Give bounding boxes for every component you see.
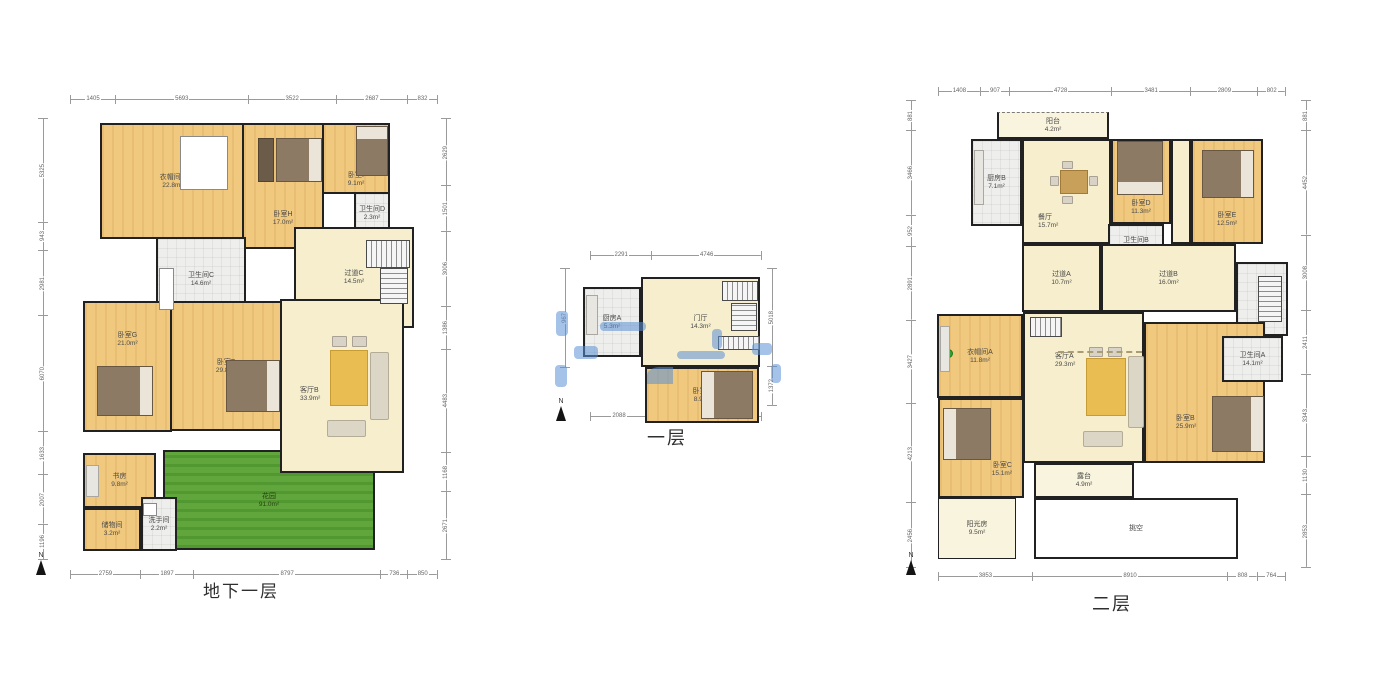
room-name: 阳台 (1046, 117, 1060, 126)
dimension-label: 832 (417, 96, 429, 103)
room-balcony: 阳台 4.2m² (997, 112, 1109, 139)
north-label: N (38, 552, 43, 559)
room-area: 14.6m² (191, 280, 211, 288)
blue-annotation-mark (771, 364, 781, 383)
wardrobe-icon (258, 138, 274, 182)
dimension-label: 1501 (443, 201, 450, 216)
room-name: 厨房B (987, 174, 1006, 183)
dimension-label: 4728 (1053, 88, 1068, 95)
room-name: 餐厅 (1038, 213, 1052, 222)
dashed-divider (1058, 351, 1142, 353)
dimension-segment: 2853 (1301, 494, 1311, 568)
dimension-label: 3006 (443, 261, 450, 276)
dimension-segment: 2687 (336, 95, 407, 104)
dimension-segment: 2411 (1301, 310, 1311, 373)
dimension-segment: 3006 (441, 231, 451, 306)
dimension-label: 4213 (908, 446, 915, 461)
room-name: 花园 (262, 492, 276, 501)
dimension-label: 1897 (159, 571, 174, 578)
room-area: 16.0m² (1158, 279, 1178, 287)
dimension-segment: 1633 (38, 431, 48, 474)
room-sunroom: 阳光房 9.5m² (938, 498, 1016, 559)
room-area: 29.3m² (1055, 361, 1075, 369)
stairs-icon (366, 240, 410, 268)
dimension-segment: 8910 (1032, 572, 1228, 581)
dimension-segment: 3522 (248, 95, 336, 104)
room-name: 卫生间D (359, 205, 385, 214)
chair-icon (1062, 161, 1073, 169)
dimension-label: 808 (1236, 573, 1248, 580)
dimension-col-right: 5018 1372 (767, 268, 777, 406)
dimension-label: 1168 (443, 465, 450, 480)
wardrobe-icon (180, 136, 228, 190)
room-name: 卫生间A (1240, 351, 1266, 360)
armchair-icon (332, 336, 347, 347)
shelf-icon (940, 326, 950, 372)
room-name: 门厅 (694, 314, 708, 323)
room-area: 2.2m² (151, 525, 168, 533)
dimension-segment: 952 (906, 215, 916, 247)
room-name: 卧室G (118, 331, 137, 340)
blue-annotation-mark (647, 367, 673, 384)
room-area: 3.2m² (104, 530, 121, 538)
plan-title-floor2: 二层 (1092, 590, 1132, 616)
dimension-segment: 1130 (1301, 456, 1311, 494)
dimension-label: 3853 (978, 573, 993, 580)
room-area: 33.9m² (300, 395, 320, 403)
stairs-icon (722, 281, 758, 301)
stairs-icon (1030, 317, 1062, 337)
dimension-segment: 943 (38, 222, 48, 250)
chair-icon (1062, 196, 1073, 204)
blue-annotation-mark (556, 311, 568, 336)
corridor-b-extension (1171, 139, 1191, 244)
dimension-label: 2291 (614, 252, 629, 259)
dimension-label: 952 (908, 225, 915, 237)
room-hallway-a: 过道A 10.7m² (1022, 244, 1101, 312)
stairs-icon (380, 268, 408, 304)
dimension-label: 3481 (1144, 88, 1159, 95)
dimension-segment: 2007 (38, 474, 48, 523)
dimension-label: 2456 (908, 528, 915, 543)
room-area: 9.5m² (969, 529, 986, 537)
dimension-segment: 3481 (1111, 87, 1190, 96)
dimension-label: 1633 (40, 446, 47, 461)
bed-icon (1117, 141, 1163, 195)
dimension-segment: 850 (407, 570, 438, 579)
dimension-label: 1405 (85, 96, 100, 103)
room-area: 12.5m² (1217, 220, 1237, 228)
dimension-segment: 6070 (38, 315, 48, 431)
dimension-label: 3427 (908, 354, 915, 369)
room-name: 卫生间C (188, 271, 214, 280)
dimension-label: 5693 (174, 96, 189, 103)
dimension-label: 1386 (443, 320, 450, 335)
dimension-row-bottom: 3853 8910 808 764 (938, 572, 1286, 581)
chair-icon (1050, 176, 1059, 186)
blue-annotation-mark (574, 346, 598, 359)
dimension-segment: 881 (1301, 100, 1311, 130)
room-name: 书房 (113, 472, 127, 481)
room-bathroom-a: 卫生间A 14.1m² (1222, 336, 1283, 382)
dimension-label: 881 (908, 110, 915, 122)
dimension-label: 2759 (98, 571, 113, 578)
room-name: 阳光房 (967, 520, 988, 529)
compass-icon: N (906, 552, 916, 575)
dimension-label: 2853 (1303, 524, 1310, 539)
dimension-segment: 2981 (38, 250, 48, 315)
bathtub-icon (159, 268, 174, 310)
dimension-label: 2629 (443, 145, 450, 160)
room-area: 15.7m² (1038, 222, 1058, 230)
room-name: 挑空 (1129, 524, 1143, 533)
room-storage: 储物间 3.2m² (83, 508, 141, 551)
room-area: 14.1m² (1242, 360, 1262, 368)
dimension-segment: 3427 (906, 320, 916, 404)
sofa-icon (370, 352, 389, 420)
room-name: 过道B (1159, 270, 1178, 279)
armchair-icon (352, 336, 367, 347)
bed-icon (226, 360, 280, 412)
dimension-label: 2671 (443, 518, 450, 533)
dimension-segment: 2629 (441, 118, 451, 185)
room-area: 11.3m² (1131, 208, 1151, 216)
dimension-label: 907 (989, 88, 1001, 95)
dimension-col-left: 881 3466 952 2891 3427 4213 2456 (906, 100, 916, 568)
dimension-segment: 2088 (590, 412, 647, 421)
dimension-row-top: 1405 5693 3522 2687 832 (70, 95, 438, 104)
dimension-label: 2007 (40, 492, 47, 507)
dimension-segment: 4452 (1301, 130, 1311, 234)
dimension-label: 1408 (952, 88, 967, 95)
room-name: 卧室H (273, 210, 292, 219)
dimension-segment: 802 (1257, 87, 1286, 96)
dimension-label: 736 (388, 571, 400, 578)
dimension-label: 4452 (1303, 175, 1310, 190)
room-area: 2.3m² (364, 214, 381, 222)
dimension-label: 3466 (908, 165, 915, 180)
dimension-label: 881 (1303, 110, 1310, 122)
room-name: 客厅A (1055, 352, 1074, 361)
bed-icon (1212, 396, 1264, 452)
dimension-segment: 1405 (70, 95, 115, 104)
compass-needle-icon (556, 406, 566, 421)
dimension-segment: 2809 (1190, 87, 1257, 96)
dimension-segment: 907 (980, 87, 1009, 96)
blue-annotation-mark (555, 365, 567, 387)
room-area: 9.8m² (111, 481, 128, 489)
compass-icon: N (36, 552, 46, 575)
dimension-segment: 881 (906, 100, 916, 130)
room-area: 7.1m² (988, 183, 1005, 191)
room-name: 卧室C (993, 461, 1012, 470)
dimension-label: 2809 (1217, 88, 1232, 95)
room-name: 衣帽间A (967, 348, 993, 357)
dimension-segment: 4213 (906, 403, 916, 502)
blue-annotation-mark (600, 322, 646, 331)
dimension-segment: 736 (380, 570, 407, 579)
dimension-segment: 3008 (1301, 235, 1311, 311)
room-area: 10.7m² (1051, 279, 1071, 287)
rug-icon (330, 350, 368, 406)
dimension-label: 3343 (1303, 408, 1310, 423)
dimension-row-top: 2291 4746 (590, 251, 762, 260)
dimension-label: 2891 (908, 276, 915, 291)
dimension-label: 943 (40, 230, 47, 242)
kitchen-counter-icon (586, 295, 598, 335)
dimension-label: 2411 (1303, 335, 1310, 350)
dimension-segment: 1501 (441, 185, 451, 231)
dimension-segment: 4728 (1009, 87, 1111, 96)
bed-icon (943, 408, 991, 460)
dimension-label: 5325 (40, 163, 47, 178)
blue-annotation-mark (712, 329, 722, 349)
dimension-segment: 2671 (441, 491, 451, 560)
dimension-segment: 5325 (38, 118, 48, 222)
dimension-label: 1196 (40, 534, 47, 549)
room-area: 4.2m² (1045, 126, 1062, 134)
room-area: 14.3m² (690, 323, 710, 331)
compass-needle-icon (36, 560, 46, 575)
north-label: N (558, 398, 563, 405)
floorplan-canvas: 花园 91.0m² 衣帽间B 22.8m² 卧室H 17.0m² 卧室I 9.1… (0, 0, 1389, 700)
dimension-segment: 3853 (938, 572, 1032, 581)
dimension-segment: 2291 (590, 251, 651, 260)
dimension-label: 8797 (279, 571, 294, 578)
dimension-col-right: 2629 1501 3006 1386 4483 1168 2671 (441, 118, 451, 560)
dimension-row-top: 1408 907 4728 3481 2809 802 (938, 87, 1286, 96)
dimension-label: 8910 (1122, 573, 1137, 580)
dimension-segment: 832 (407, 95, 438, 104)
desk-icon (86, 465, 99, 497)
dimension-label: 4483 (443, 393, 450, 408)
room-name: 过道C (344, 269, 363, 278)
room-area: 17.0m² (273, 219, 293, 227)
room-terrace: 露台 4.9m² (1034, 463, 1134, 498)
room-area: 9.1m² (348, 180, 365, 188)
blue-annotation-mark (752, 343, 772, 355)
dimension-label: 3522 (285, 96, 300, 103)
room-area: 25.9m² (1176, 423, 1196, 431)
room-name: 卧室D (1131, 199, 1150, 208)
compass-needle-icon (906, 560, 916, 575)
dimension-segment: 5693 (115, 95, 248, 104)
room-area: 11.8m² (970, 357, 990, 365)
dimension-segment: 1408 (938, 87, 980, 96)
dimension-label: 850 (417, 571, 429, 578)
room-name: 客厅B (300, 386, 319, 395)
dimension-segment: 1168 (441, 452, 451, 491)
room-name: 露台 (1077, 472, 1091, 481)
bed-icon (97, 366, 153, 416)
dimension-label: 5018 (769, 310, 776, 325)
plan-title-basement: 地下一层 (203, 577, 279, 602)
dimension-segment: 1386 (441, 306, 451, 349)
dimension-segment: 2891 (906, 246, 916, 319)
dimension-label: 802 (1266, 88, 1278, 95)
dimension-segment: 2759 (70, 570, 140, 579)
bed-icon (356, 126, 388, 176)
room-area: 15.1m² (992, 470, 1012, 478)
bed-icon (1202, 150, 1254, 198)
dimension-col-right: 881 4452 3008 2411 3343 1130 2853 (1301, 100, 1311, 568)
kitchen-counter-icon (974, 150, 984, 205)
dimension-segment: 3466 (906, 130, 916, 214)
dimension-segment: 764 (1257, 572, 1286, 581)
plan-title-floor1: 一层 (647, 424, 687, 450)
room-area: 14.5m² (344, 278, 364, 286)
room-name: 储物间 (102, 521, 123, 530)
chair-icon (1089, 176, 1098, 186)
dimension-label: 764 (1265, 573, 1277, 580)
bed-icon (276, 138, 322, 182)
room-hallway-b: 过道B 16.0m² (1101, 244, 1236, 312)
stairs-icon (731, 303, 757, 331)
room-void: 挑空 (1034, 498, 1238, 559)
dimension-label: 2981 (40, 276, 47, 291)
room-name: 卧室B (1176, 414, 1195, 423)
north-label: N (908, 552, 913, 559)
room-area: 91.0m² (259, 501, 279, 509)
sofa-icon (1083, 431, 1123, 447)
washer-icon (143, 503, 157, 516)
room-name: 过道A (1052, 270, 1071, 279)
room-name: 卧室E (1218, 211, 1237, 220)
sofa-icon (1128, 356, 1144, 428)
room-area: 21.0m² (117, 340, 137, 348)
stairs-icon (1258, 276, 1282, 322)
dining-table-icon (1060, 170, 1088, 194)
dimension-label: 4746 (699, 252, 714, 259)
blue-annotation-mark (677, 351, 725, 359)
dimension-label: 2687 (364, 96, 379, 103)
dimension-label: 3008 (1303, 265, 1310, 280)
dimension-segment: 1897 (140, 570, 193, 579)
room-area: 4.9m² (1076, 481, 1093, 489)
bed-icon (701, 371, 753, 419)
dimension-col-left: 5325 943 2981 6070 1633 2007 1196 (38, 118, 48, 560)
room-name: 洗手间 (149, 516, 170, 525)
rug-icon (1086, 358, 1126, 416)
dimension-label: 6070 (40, 366, 47, 381)
dimension-segment: 808 (1227, 572, 1256, 581)
dimension-segment: 4746 (651, 251, 762, 260)
dimension-label: 2088 (611, 413, 626, 420)
dimension-label: 1130 (1303, 468, 1310, 483)
compass-icon: N (556, 398, 566, 421)
dimension-segment: 4483 (441, 349, 451, 452)
sofa-icon (327, 420, 366, 437)
dimension-segment: 3343 (1301, 374, 1311, 456)
